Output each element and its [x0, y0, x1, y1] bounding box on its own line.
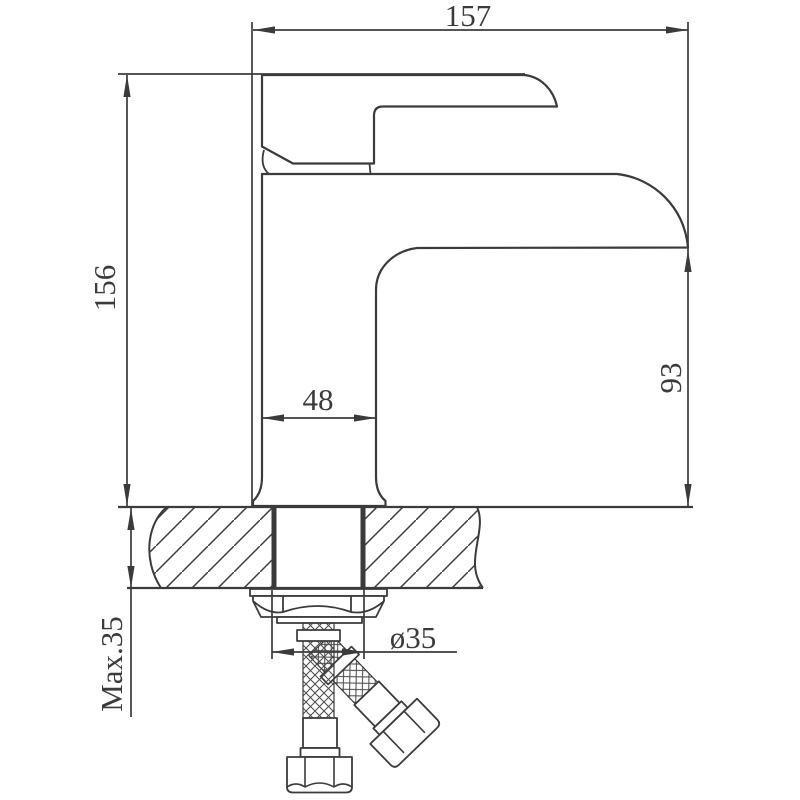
handle-shoulder-arc — [263, 150, 269, 174]
counter-hatch-left — [149, 507, 272, 588]
handle-body-connector — [370, 164, 371, 175]
arrow-93-bottom — [684, 484, 691, 506]
faucet-handle — [262, 75, 557, 164]
dimension-annotations — [118, 22, 688, 717]
arrow-157-right — [666, 26, 688, 33]
dim-label-max-thickness: Max.35 — [94, 616, 129, 712]
dim-label-top-width: 157 — [445, 0, 492, 33]
dim-label-total-height: 156 — [87, 265, 122, 312]
dim-label-hole-diameter: ø35 — [390, 620, 437, 655]
arrow-max35-top — [127, 508, 134, 530]
arrow-max35-bottom — [127, 566, 134, 588]
countertop-section — [118, 507, 693, 588]
drawing-sheet: 157 156 93 48 Max.35 ø35 — [0, 0, 800, 800]
hose-collar-vertical — [301, 748, 340, 757]
hose-crimp-band-vertical — [297, 630, 340, 641]
arrow-156-top — [123, 75, 130, 97]
dim-label-base-width: 48 — [303, 382, 334, 417]
mounting-washer — [250, 589, 387, 596]
arrow-157-left — [253, 26, 275, 33]
dim-label-spout-height: 93 — [653, 363, 688, 394]
counter-hatch-right — [365, 507, 483, 588]
arrow-93-top — [684, 250, 691, 272]
mounting-hardware — [250, 589, 387, 623]
hose-ferrule-vertical — [303, 718, 337, 748]
faucet-body — [253, 174, 688, 506]
arrow-dia35-left — [272, 648, 294, 655]
faucet-outline — [253, 75, 688, 506]
arrow-156-bottom — [123, 484, 130, 506]
faucet-technical-drawing: 157 156 93 48 Max.35 ø35 — [0, 0, 800, 800]
mounting-plate — [277, 617, 362, 623]
hose-nut-vertical — [287, 757, 352, 793]
